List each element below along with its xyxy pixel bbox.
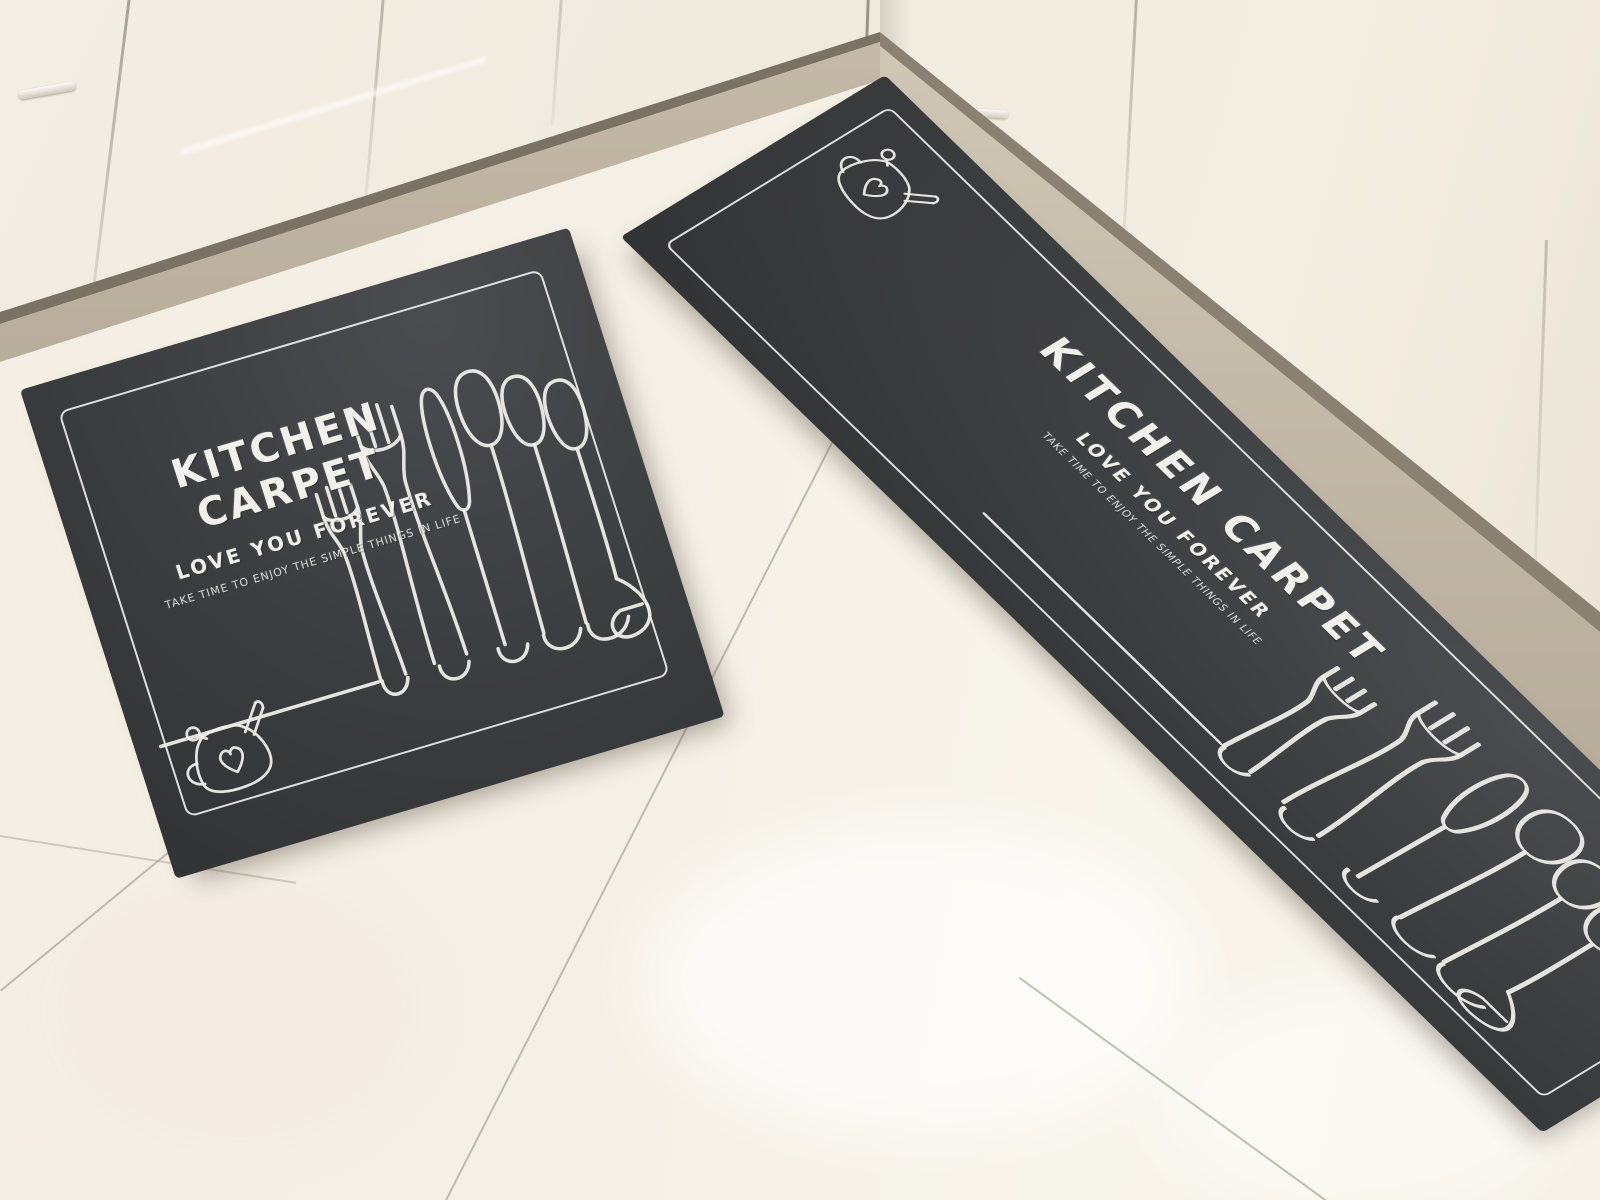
kitchen-photo-scene: KITCHEN CARPET LOVE YOU FOREVER TAKE TIM… [0, 0, 1600, 1200]
cabinet-door-gap [1533, 240, 1548, 570]
floor-reflection [60, 880, 420, 1140]
cabinet-door-highlight [180, 56, 487, 154]
cabinet-door-gap [1122, 0, 1138, 236]
floor-reflection [640, 820, 1200, 1140]
cabinet-handle [18, 81, 77, 100]
cabinet-door-gap [551, 0, 563, 126]
